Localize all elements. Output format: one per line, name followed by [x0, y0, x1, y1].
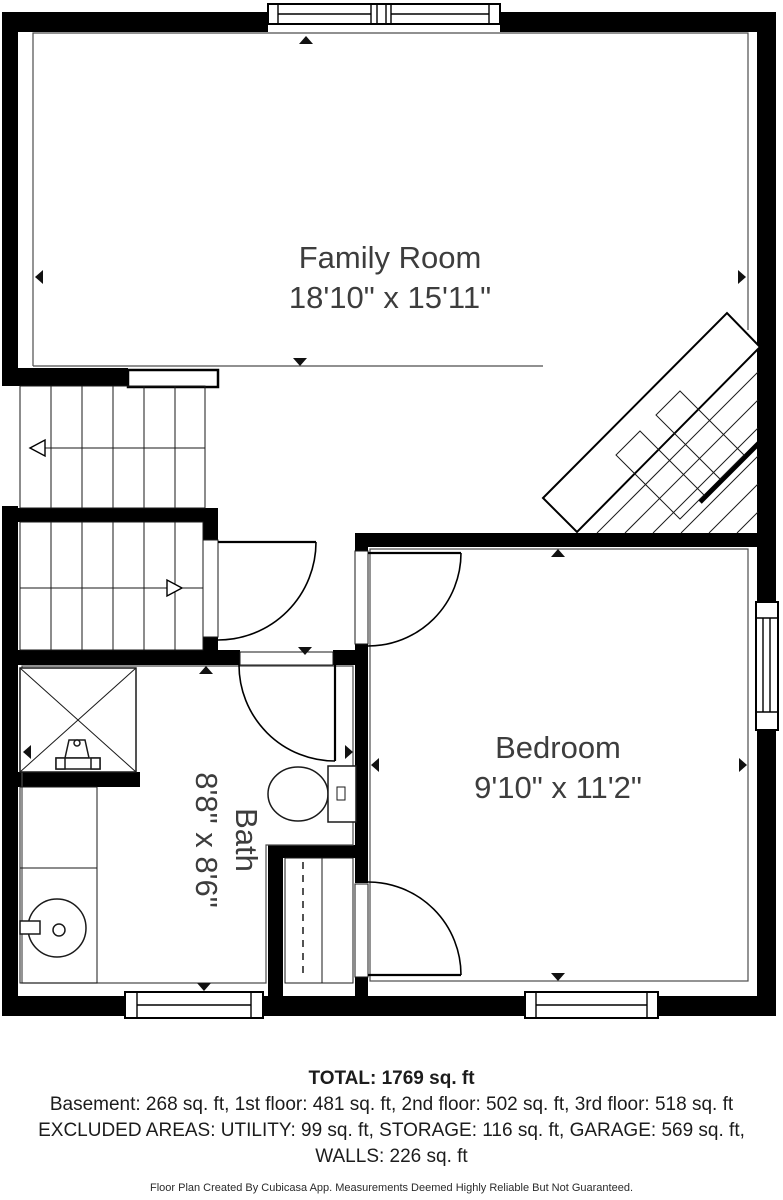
- bedroom-outline: [370, 549, 748, 981]
- arrow-bath-bottom: [197, 983, 211, 991]
- wall-left-upper: [2, 12, 18, 386]
- door-bedroom-south: [355, 882, 461, 977]
- wall-bedroom-top: [355, 533, 760, 547]
- diagonal-stair-stringer: [543, 313, 760, 532]
- arrow-bedroom-top: [551, 549, 565, 557]
- footer-disclaimer: Floor Plan Created By Cubicasa App. Meas…: [0, 1182, 783, 1194]
- walls: [2, 12, 776, 1016]
- toilet-icon: [268, 766, 356, 822]
- room-label-bath: Bath: [229, 808, 264, 872]
- arrow-family-bottom: [293, 358, 307, 366]
- room-dims-bath: 8'8" x 8'6": [189, 772, 224, 908]
- arrow-family-top: [299, 36, 313, 44]
- wall-right-upper: [757, 12, 776, 602]
- shower: [20, 668, 136, 772]
- floor-plan-page: { "plan": { "rooms": [ {"name": "Family …: [0, 0, 783, 1200]
- door-bedroom-north: [355, 551, 461, 646]
- room-dims-bedroom: 9'10" x 11'2": [474, 770, 642, 805]
- stair-direction-arrow-left: [30, 440, 45, 456]
- wall-top-left: [4, 12, 268, 32]
- area-summary: TOTAL: 1769 sq. ft Basement: 268 sq. ft,…: [0, 1066, 783, 1170]
- excluded-areas-text: EXCLUDED AREAS: UTILITY: 99 sq. ft, STOR…: [0, 1118, 783, 1144]
- arrow-bedroom-right: [739, 758, 747, 772]
- wall-stairs-mid: [2, 508, 218, 522]
- vanity-counter: [20, 787, 97, 983]
- arrow-family-right: [738, 270, 746, 284]
- floor-areas-text: Basement: 268 sq. ft, 1st floor: 481 sq.…: [0, 1092, 783, 1118]
- door-stair-hall: [203, 540, 316, 640]
- room-label-bedroom: Bedroom: [495, 730, 621, 765]
- washbasin-icon: [20, 899, 86, 957]
- door-bath: [239, 652, 335, 761]
- floor-plan-canvas: Family Room 18'10" x 15'11" Bedroom 9'10…: [0, 0, 783, 1045]
- arrow-bedroom-left: [371, 758, 379, 772]
- arrow-bath-top: [199, 666, 213, 674]
- arrow-bedroom-bottom: [551, 973, 565, 981]
- window-bedroom-right: [756, 602, 778, 730]
- wall-bottom-3: [658, 996, 776, 1016]
- staircase-lower-flight: [20, 522, 203, 650]
- arrow-family-left: [35, 270, 43, 284]
- stair-ledge-half-wall: [128, 370, 218, 387]
- wall-shower-bottom: [18, 772, 140, 787]
- staircase-upper-flight: [20, 386, 205, 508]
- wall-right-lower: [757, 730, 776, 1016]
- wall-bedroom-left-c: [355, 977, 368, 996]
- window-top: [268, 4, 500, 24]
- wall-stairs-top: [2, 368, 128, 386]
- window-bedroom-bottom: [525, 992, 658, 1018]
- wall-bath-top-a: [2, 650, 240, 665]
- room-dims-family-room: 18'10" x 15'11": [289, 280, 491, 315]
- wall-bottom-1: [2, 996, 125, 1016]
- arrow-bath-right: [345, 745, 353, 759]
- wall-top-right: [500, 12, 776, 32]
- window-bath-bottom: [125, 992, 263, 1018]
- total-area-text: TOTAL: 1769 sq. ft: [0, 1066, 783, 1092]
- closet-under-stairs: [285, 858, 353, 983]
- wall-closet-top: [268, 845, 368, 858]
- room-label-family-room: Family Room: [299, 240, 482, 275]
- wall-left-lower: [2, 506, 18, 1016]
- walls-area-text: WALLS: 226 sq. ft: [0, 1144, 783, 1170]
- staircase-diagonal-corner: [543, 313, 762, 533]
- wall-bottom-2: [263, 996, 525, 1016]
- family-room-outline: [33, 33, 748, 366]
- wall-stairs-side-a: [203, 522, 218, 540]
- wall-closet-left: [268, 845, 283, 996]
